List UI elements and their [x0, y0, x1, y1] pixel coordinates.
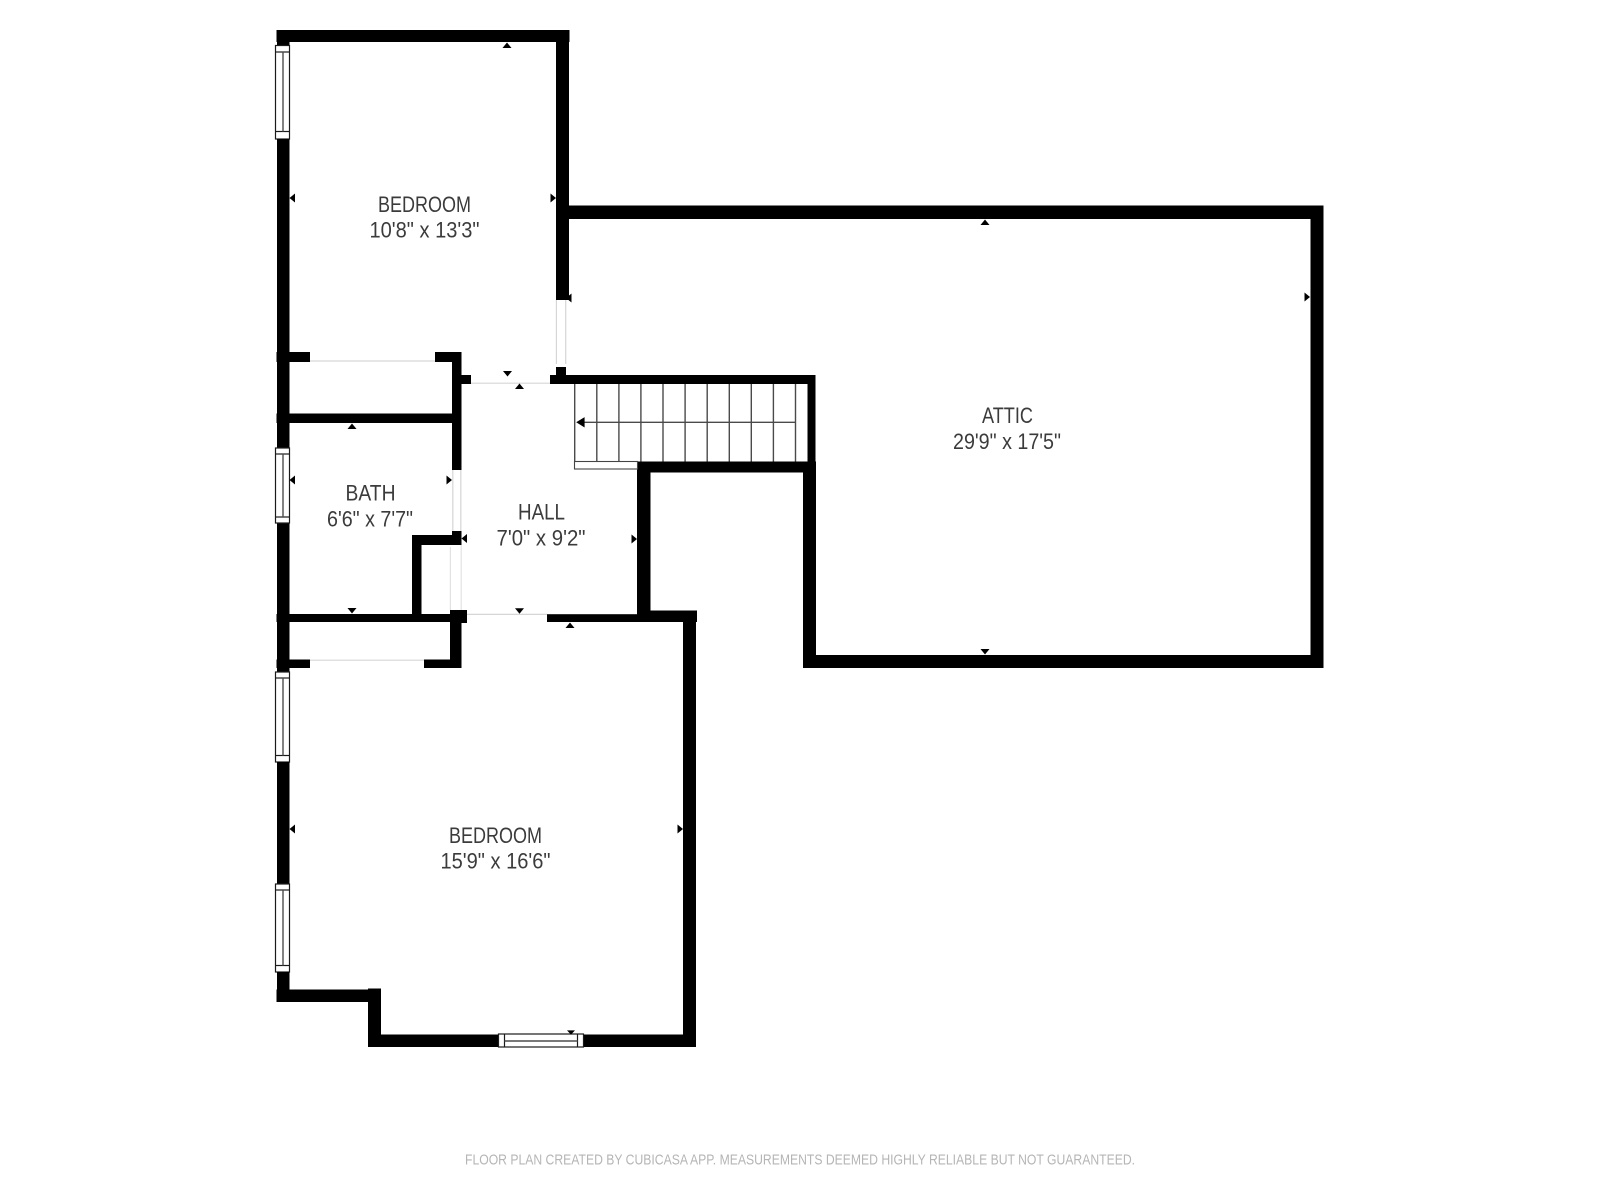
svg-text:BEDROOM: BEDROOM	[378, 192, 471, 217]
svg-text:7'0" x 9'2": 7'0" x 9'2"	[497, 526, 586, 551]
svg-text:15'9" x 16'6": 15'9" x 16'6"	[441, 849, 551, 874]
svg-text:10'8" x 13'3": 10'8" x 13'3"	[370, 218, 480, 243]
svg-text:6'6" x 7'7": 6'6" x 7'7"	[327, 507, 413, 532]
svg-text:ATTIC: ATTIC	[982, 403, 1033, 428]
svg-text:BATH: BATH	[346, 481, 396, 506]
svg-text:29'9" x 17'5": 29'9" x 17'5"	[953, 429, 1061, 454]
svg-text:BEDROOM: BEDROOM	[449, 823, 542, 848]
svg-text:FLOOR PLAN CREATED BY CUBICASA: FLOOR PLAN CREATED BY CUBICASA APP. MEAS…	[465, 1152, 1135, 1169]
svg-text:HALL: HALL	[518, 500, 565, 525]
